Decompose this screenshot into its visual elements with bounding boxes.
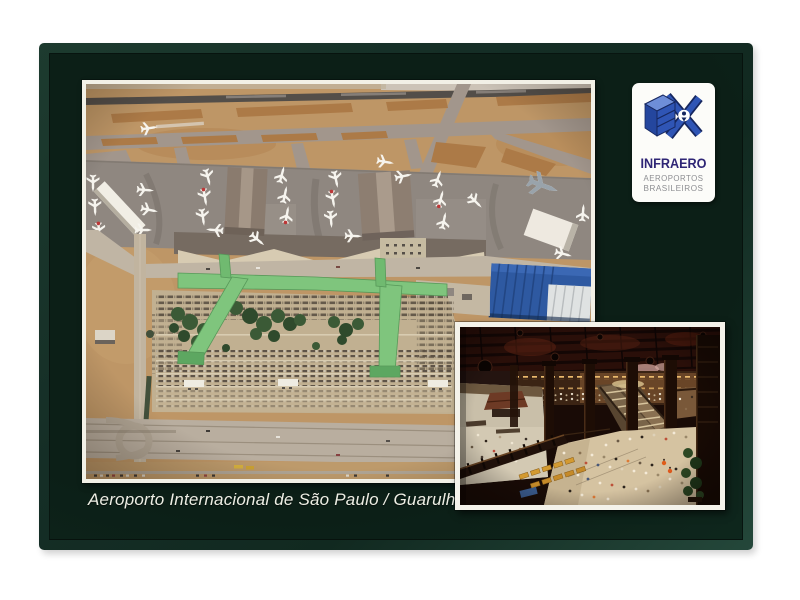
terminal-interior-frame [455, 322, 725, 510]
interior-photo [460, 327, 720, 505]
infraero-badge: INFRAERO AEROPORTOS BRASILEIROS [632, 83, 715, 202]
infraero-logo-mark [645, 95, 699, 136]
infraero-subtitle-2: BRASILEIROS [644, 184, 704, 193]
infraero-logo: INFRAERO AEROPORTOS BRASILEIROS [632, 83, 715, 202]
postcard-caption: Aeroporto Internacional de São Paulo / G… [88, 490, 508, 510]
inset-vignette [460, 327, 720, 505]
infraero-title: INFRAERO [641, 156, 707, 171]
scanned-postcard-page: INFRAERO AEROPORTOS BRASILEIROS [0, 0, 800, 600]
postcard: INFRAERO AEROPORTOS BRASILEIROS [39, 43, 753, 550]
infraero-subtitle-1: AEROPORTOS [644, 174, 704, 183]
